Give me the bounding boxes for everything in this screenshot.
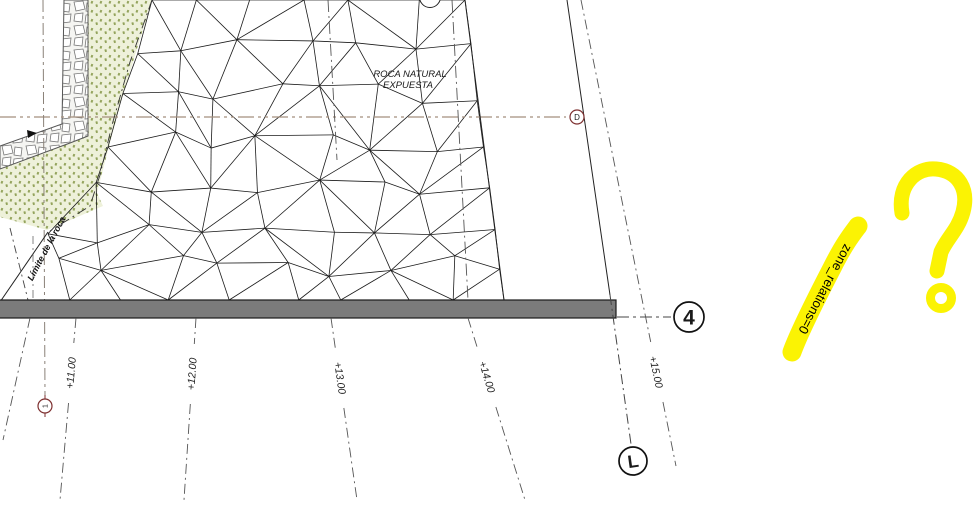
question-mark-hook	[901, 169, 964, 271]
top-point-circle	[420, 0, 441, 8]
grid-marker-4: 4	[674, 302, 704, 332]
question-mark-annotation	[901, 169, 964, 309]
station-line	[496, 407, 525, 500]
station-line	[468, 318, 477, 347]
station-line	[194, 318, 196, 344]
site-plan-drawing: +11.00+12.00+13.00+14.00+15.00D14LROCA N…	[0, 0, 978, 531]
station-line	[331, 318, 335, 348]
station-label-group: +13.00	[330, 353, 351, 402]
station-line	[60, 403, 69, 500]
vert-dashdot-mid	[328, 0, 337, 160]
station-line	[74, 318, 76, 343]
station-label-group: +11.00	[62, 348, 80, 397]
station-line	[663, 402, 676, 466]
grid-marker-L: L	[619, 447, 647, 475]
station-label-group: +12.00	[183, 350, 200, 399]
station-line	[344, 408, 357, 500]
grid-marker-label: 1	[43, 404, 50, 408]
site-plan-canvas: +11.00+12.00+13.00+14.00+15.00D14LROCA N…	[0, 0, 978, 531]
grid-marker-label: D	[574, 113, 580, 122]
station-label-group: +15.00	[644, 347, 668, 397]
label-roca-natural-line1: ROCA NATURAL	[373, 69, 446, 80]
question-mark-dot	[931, 288, 952, 309]
grid-line-l-solid	[567, 0, 610, 295]
mesh-right-boundary	[465, 0, 504, 300]
limite-dash-a	[10, 228, 28, 300]
below-bar-left-dash	[3, 318, 30, 440]
grid-marker-1: 1	[38, 395, 52, 417]
section-bar	[0, 300, 616, 318]
station-label: +12.00	[185, 357, 199, 390]
highlight-text: zone_relations=0	[795, 242, 855, 337]
station-label-group: +14.00	[473, 352, 500, 402]
station-line	[184, 404, 190, 500]
grid-marker-D: D	[570, 110, 584, 124]
label-roca-natural-line2: EXPUESTA	[383, 80, 433, 91]
grid-marker-label: 4	[683, 307, 695, 330]
